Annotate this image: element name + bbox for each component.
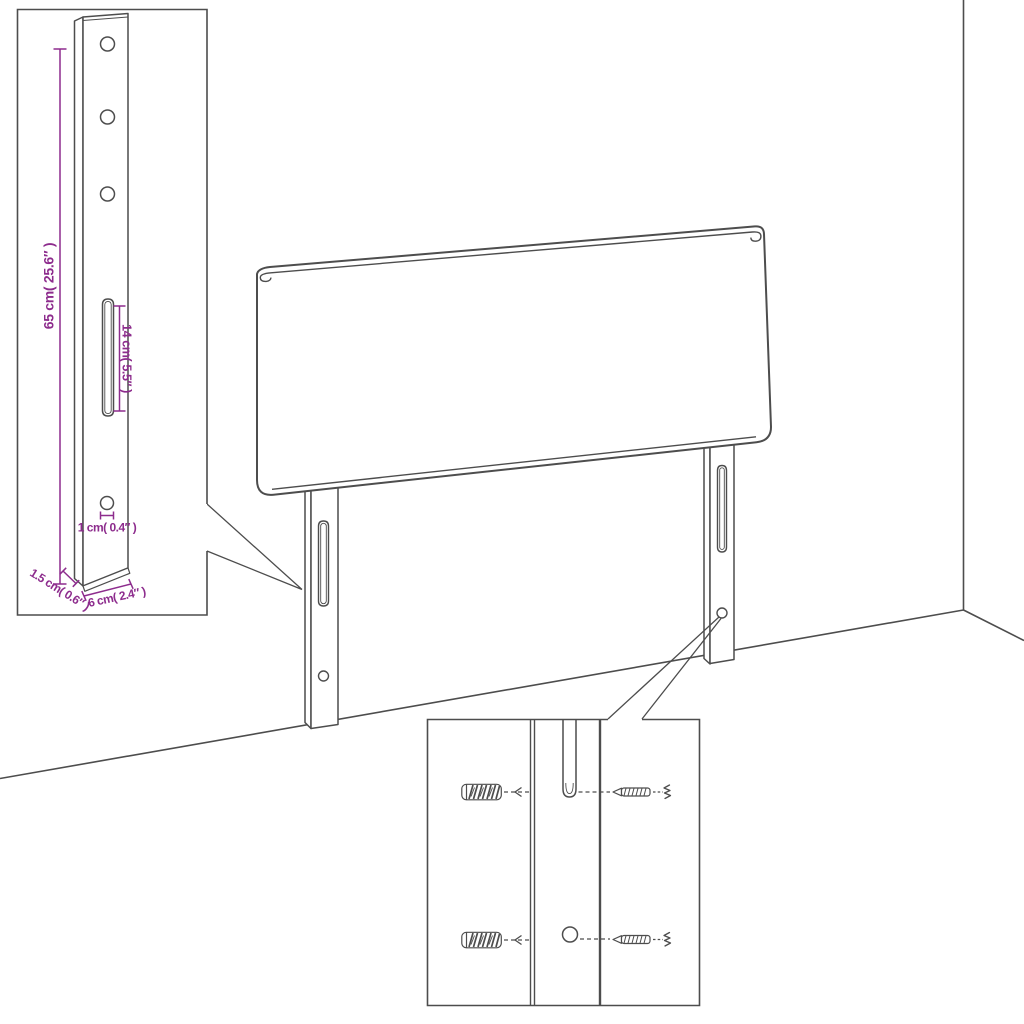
headboard-left-leg — [305, 476, 338, 729]
headboard-outline — [257, 226, 771, 495]
wall-plug-icon — [462, 784, 502, 800]
diagram-canvas: 65 cm( 25.6″ ) 14 cm( 5.5″ ) 1 cm( 0.4″ … — [0, 0, 1024, 1024]
inset-leg-side-face — [75, 17, 84, 586]
wall-plug-icon — [462, 932, 502, 948]
inset-leg-hole-2 — [101, 110, 115, 124]
right-leg-hole — [717, 608, 727, 618]
inset2-hole — [563, 927, 578, 942]
inset-leg-hole-3 — [101, 187, 115, 201]
inset-callout-lines-left — [207, 504, 302, 590]
left-leg-side-face — [305, 479, 311, 729]
dim-hole-label: 1 cm( 0.4″ ) — [78, 521, 137, 535]
inset-leg-hole-1 — [101, 37, 115, 51]
left-leg-slot — [319, 521, 329, 606]
headboard-right-leg — [704, 442, 734, 664]
dim-height-label: 65 cm( 25.6″ ) — [41, 243, 57, 330]
right-leg-slot — [718, 466, 727, 553]
hardware-detail-inset — [428, 617, 722, 1006]
left-leg-hole — [319, 671, 329, 681]
dim-slot-label: 14 cm( 5.5″ ) — [120, 324, 134, 393]
headboard-dimension-diagram: 65 cm( 25.6″ ) 14 cm( 5.5″ ) 1 cm( 0.4″ … — [0, 0, 1024, 1024]
headboard-panel — [257, 226, 771, 495]
right-leg-side-face — [704, 445, 710, 664]
inset-leg-slot — [103, 299, 114, 416]
inset-leg-small-hole — [101, 497, 114, 510]
